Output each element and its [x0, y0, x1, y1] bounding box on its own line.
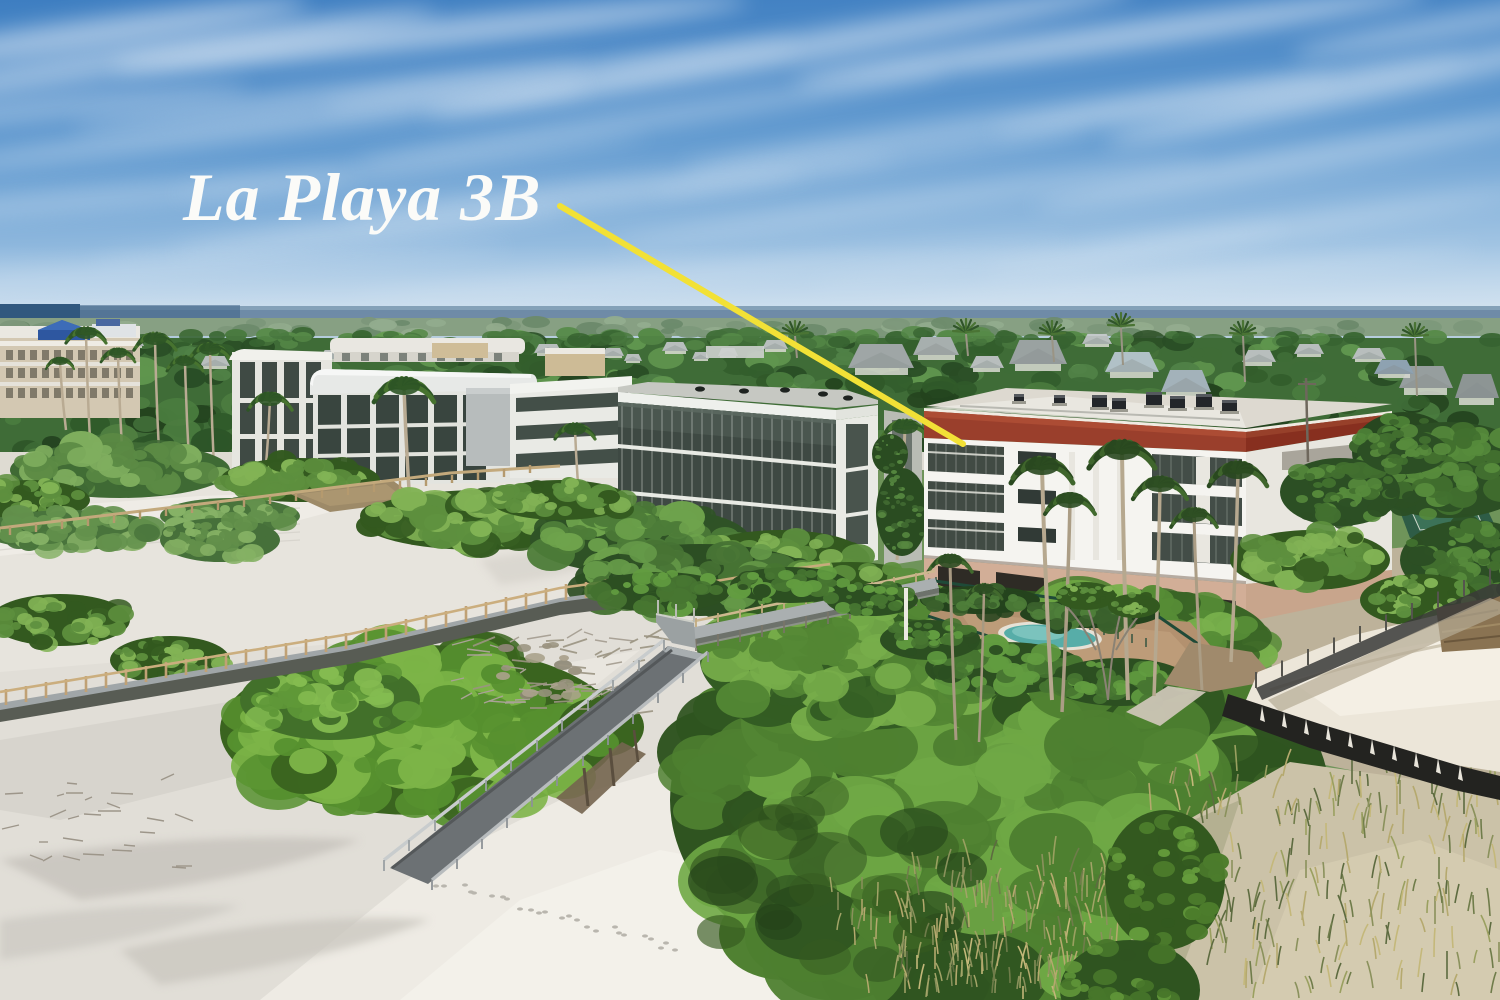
svg-text:La Playa 3B: La Playa 3B [182, 159, 542, 235]
